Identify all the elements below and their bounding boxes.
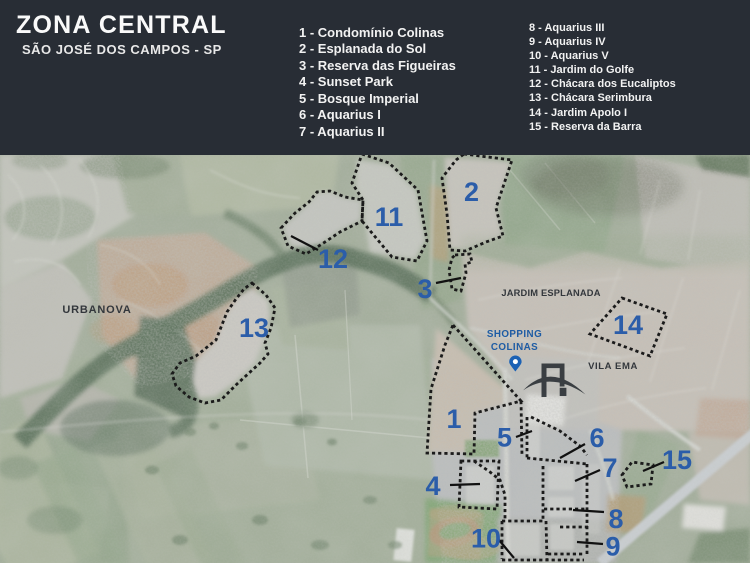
svg-text:9: 9 <box>605 532 620 562</box>
svg-text:VILA EMA: VILA EMA <box>588 361 638 372</box>
svg-text:8: 8 <box>608 504 623 534</box>
svg-text:4: 4 <box>425 471 440 501</box>
svg-text:12: 12 <box>318 244 348 274</box>
svg-text:3: 3 <box>417 274 432 304</box>
svg-text:11: 11 <box>375 202 404 232</box>
svg-text:URBANOVA: URBANOVA <box>62 304 131 316</box>
svg-text:COLINAS: COLINAS <box>491 342 538 353</box>
svg-text:7: 7 <box>602 453 617 483</box>
svg-text:1: 1 <box>446 404 461 434</box>
svg-text:2: 2 <box>464 177 479 207</box>
svg-text:10: 10 <box>471 524 501 554</box>
svg-text:15: 15 <box>662 445 692 475</box>
svg-text:JARDIM ESPLANADA: JARDIM ESPLANADA <box>501 288 600 298</box>
svg-text:14: 14 <box>613 310 643 340</box>
svg-text:5: 5 <box>497 423 512 453</box>
svg-text:13: 13 <box>239 313 269 343</box>
svg-text:6: 6 <box>589 423 604 453</box>
svg-text:SHOPPING: SHOPPING <box>487 329 542 340</box>
